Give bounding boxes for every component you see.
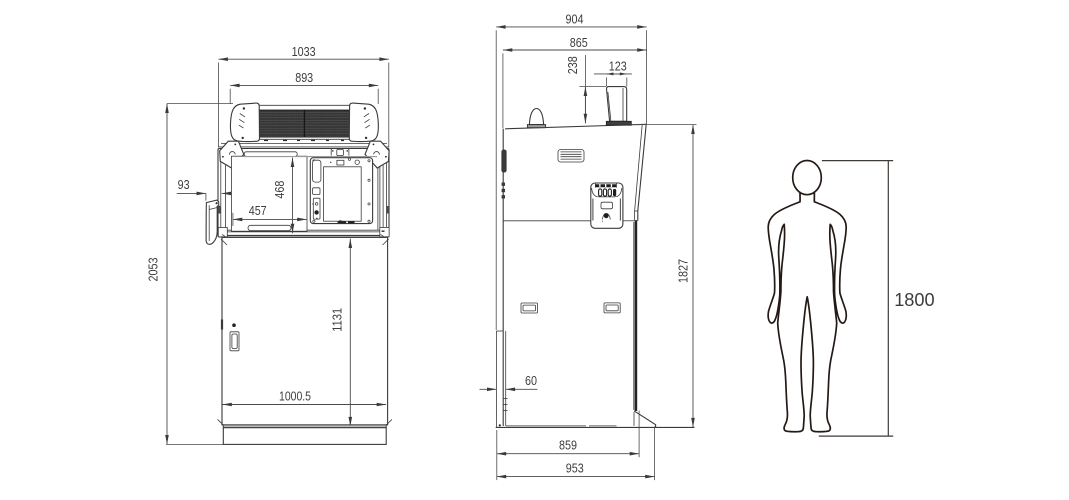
svg-text:859: 859 (559, 439, 577, 453)
svg-text:123: 123 (609, 60, 627, 74)
svg-text:953: 953 (566, 461, 584, 475)
svg-text:865: 865 (570, 36, 588, 50)
svg-text:1131: 1131 (330, 308, 344, 332)
svg-text:93: 93 (178, 178, 190, 192)
svg-text:1827: 1827 (677, 259, 691, 283)
svg-text:238: 238 (566, 56, 580, 74)
svg-text:1800: 1800 (894, 290, 935, 310)
svg-text:904: 904 (566, 13, 584, 27)
svg-text:1000.5: 1000.5 (279, 389, 311, 403)
svg-text:60: 60 (525, 374, 537, 388)
svg-text:468: 468 (273, 181, 287, 199)
svg-text:457: 457 (249, 204, 267, 218)
svg-text:1033: 1033 (292, 45, 316, 59)
svg-text:893: 893 (295, 71, 313, 85)
svg-text:2053: 2053 (147, 258, 161, 282)
